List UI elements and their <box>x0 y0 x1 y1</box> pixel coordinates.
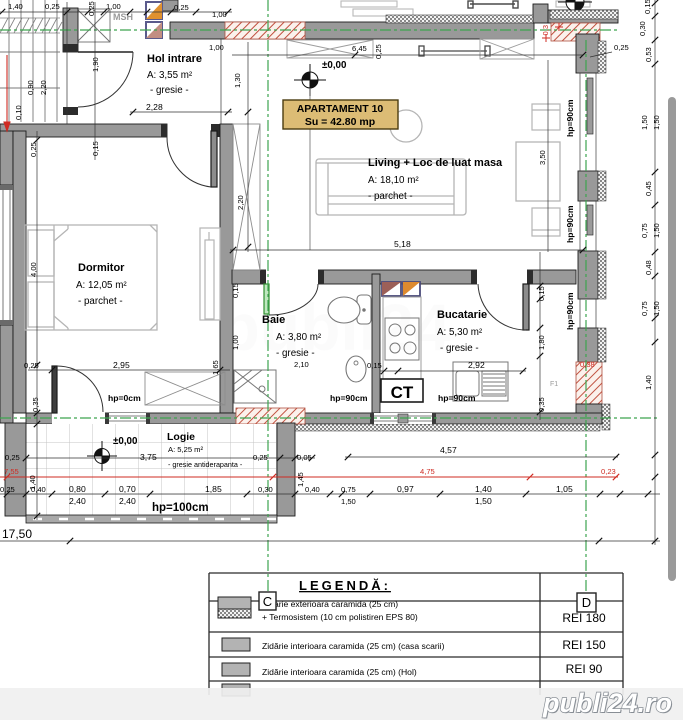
svg-text:Zidărie interioara caramida (2: Zidărie interioara caramida (25 cm) (cas… <box>262 641 445 651</box>
svg-text:MSH: MSH <box>113 12 133 22</box>
svg-text:1,85: 1,85 <box>205 484 222 494</box>
svg-text:hp=0cm: hp=0cm <box>108 393 141 403</box>
svg-text:hp=90cm: hp=90cm <box>330 393 368 403</box>
svg-text:Dormitor: Dormitor <box>78 262 125 274</box>
svg-text:Zidarie exterioara caramida (2: Zidarie exterioara caramida (25 cm) <box>262 599 398 609</box>
svg-text:D: D <box>582 595 591 610</box>
svg-text:0,35: 0,35 <box>31 397 40 412</box>
svg-text:1,80: 1,80 <box>537 335 546 350</box>
svg-text:- gresie -: - gresie - <box>276 348 315 359</box>
svg-text:0,30: 0,30 <box>638 21 647 36</box>
svg-text:REI 90: REI 90 <box>566 662 603 676</box>
svg-text:hp=90cm: hp=90cm <box>565 205 575 243</box>
svg-text:2,95: 2,95 <box>113 360 130 370</box>
svg-text:A: 5,25 m²: A: 5,25 m² <box>168 445 203 454</box>
svg-text:- gresie -: - gresie - <box>150 85 189 96</box>
svg-text:2,20: 2,20 <box>39 80 48 95</box>
svg-text:2,28: 2,28 <box>146 102 163 112</box>
svg-text:1,40: 1,40 <box>475 484 492 494</box>
svg-text:4,57: 4,57 <box>440 445 457 455</box>
svg-text:- gresie -: - gresie - <box>440 343 479 354</box>
svg-text:1,50: 1,50 <box>475 496 492 506</box>
svg-text:1,45: 1,45 <box>296 472 305 487</box>
svg-text:0,53: 0,53 <box>644 47 653 62</box>
svg-text:1,50: 1,50 <box>652 115 661 130</box>
svg-text:0,48: 0,48 <box>644 260 653 275</box>
svg-text:Bucatarie: Bucatarie <box>437 309 487 321</box>
svg-text:6,45: 6,45 <box>352 44 367 53</box>
svg-text:0,97: 0,97 <box>397 484 414 494</box>
svg-text:0,40: 0,40 <box>305 485 320 494</box>
svg-text:F1: F1 <box>550 381 558 388</box>
svg-text:0,38: 0,38 <box>580 360 595 369</box>
svg-text:±0,00: ±0,00 <box>322 60 347 71</box>
svg-text:1,30: 1,30 <box>233 73 242 88</box>
svg-text:0,75: 0,75 <box>640 301 649 316</box>
svg-text:hp=100cm: hp=100cm <box>152 502 209 514</box>
svg-text:A: 12,05 m²: A: 12,05 m² <box>76 280 127 291</box>
svg-text:0,35: 0,35 <box>537 397 546 412</box>
svg-text:- parchet -: - parchet - <box>368 191 413 202</box>
svg-text:1,50: 1,50 <box>652 223 661 238</box>
svg-text:5,18: 5,18 <box>394 239 411 249</box>
svg-text:1,05: 1,05 <box>556 484 573 494</box>
svg-text:±0,00: ±0,00 <box>113 436 138 447</box>
svg-text:A: 3,55 m²: A: 3,55 m² <box>147 70 193 81</box>
svg-text:Zidărie interioara caramida (2: Zidărie interioara caramida (25 cm) (Hol… <box>262 667 417 677</box>
svg-text:A: 18,10 m²: A: 18,10 m² <box>368 175 419 186</box>
svg-text:17,50: 17,50 <box>2 527 32 541</box>
svg-text:0,40: 0,40 <box>31 485 46 494</box>
svg-text:A: 3,80 m²: A: 3,80 m² <box>276 332 322 343</box>
svg-text:0,05: 0,05 <box>297 453 312 462</box>
svg-text:3,75: 3,75 <box>140 452 157 462</box>
svg-text:4,75: 4,75 <box>420 467 435 476</box>
svg-text:1,00: 1,00 <box>212 10 227 19</box>
svg-text:-0,3: -0,3 <box>541 25 550 38</box>
svg-text:0,10: 0,10 <box>14 105 23 120</box>
svg-text:2,92: 2,92 <box>468 360 485 370</box>
svg-text:+ Termosistem (10 cm polistire: + Termosistem (10 cm polistiren EPS 80) <box>262 612 418 622</box>
svg-text:hp=90cm: hp=90cm <box>565 99 575 137</box>
svg-text:0,25: 0,25 <box>374 44 383 59</box>
svg-text:REI 150: REI 150 <box>562 638 606 652</box>
svg-text:2,40: 2,40 <box>69 496 86 506</box>
svg-text:Su = 42.80 mp: Su = 42.80 mp <box>305 116 375 128</box>
svg-text:0,15: 0,15 <box>537 286 546 301</box>
svg-text:1,50: 1,50 <box>652 301 661 316</box>
svg-text:0,75: 0,75 <box>341 485 356 494</box>
svg-text:1,50: 1,50 <box>640 115 649 130</box>
svg-text:3,50: 3,50 <box>538 150 547 165</box>
svg-text:1,40: 1,40 <box>8 2 23 11</box>
svg-text:publi24.ro: publi24.ro <box>542 688 672 718</box>
svg-text:0,23: 0,23 <box>601 467 616 476</box>
svg-text:0,15: 0,15 <box>231 283 240 298</box>
svg-text:A: 5,30 m²: A: 5,30 m² <box>437 327 483 338</box>
svg-text:- gresie antiderapanta -: - gresie antiderapanta - <box>168 460 243 469</box>
svg-text:0,30: 0,30 <box>258 485 273 494</box>
svg-text:Living + Loc de luat masa: Living + Loc de luat masa <box>368 157 503 169</box>
svg-text:Logie: Logie <box>167 431 195 443</box>
svg-text:2,10: 2,10 <box>294 360 309 369</box>
svg-text:2,20: 2,20 <box>236 195 245 210</box>
svg-text:Baie: Baie <box>262 314 285 326</box>
svg-text:0,25: 0,25 <box>0 485 15 494</box>
svg-text:Hol intrare: Hol intrare <box>147 53 202 65</box>
svg-text:0,25: 0,25 <box>614 43 629 52</box>
svg-text:1,40: 1,40 <box>644 375 653 390</box>
svg-text:0,25: 0,25 <box>5 453 20 462</box>
svg-text:hp=90cm: hp=90cm <box>565 292 575 330</box>
svg-text:- parchet -: - parchet - <box>78 296 123 307</box>
svg-text:0,15: 0,15 <box>91 141 100 156</box>
svg-text:CT: CT <box>391 383 414 402</box>
svg-text:0,80: 0,80 <box>69 484 86 494</box>
svg-text:0,25: 0,25 <box>174 3 189 12</box>
svg-text:hp=90cm: hp=90cm <box>438 393 476 403</box>
svg-text:1,00: 1,00 <box>106 2 121 11</box>
svg-text:0,25: 0,25 <box>24 361 39 370</box>
svg-text:LEGENDĂ:: LEGENDĂ: <box>299 578 391 593</box>
svg-text:APARTAMENT 10: APARTAMENT 10 <box>297 103 384 115</box>
svg-text:0,90: 0,90 <box>26 80 35 95</box>
svg-text:1,00: 1,00 <box>231 335 240 350</box>
svg-text:1,50: 1,50 <box>341 497 356 506</box>
svg-text:0,75: 0,75 <box>640 223 649 238</box>
svg-text:7,55: 7,55 <box>4 467 19 476</box>
svg-text:1,00: 1,00 <box>209 43 224 52</box>
svg-text:1,90: 1,90 <box>91 57 100 72</box>
svg-text:C: C <box>263 594 272 609</box>
svg-text:0,45: 0,45 <box>644 181 653 196</box>
svg-text:REI 180: REI 180 <box>562 611 606 625</box>
svg-text:1,65: 1,65 <box>211 360 220 375</box>
svg-text:0,25: 0,25 <box>45 2 60 11</box>
svg-text:0,70: 0,70 <box>119 484 136 494</box>
svg-text:2,40: 2,40 <box>119 496 136 506</box>
svg-text:0,25: 0,25 <box>253 453 268 462</box>
svg-text:0,15: 0,15 <box>643 0 652 14</box>
svg-text:0,15: 0,15 <box>367 361 382 370</box>
svg-text:0,25: 0,25 <box>87 1 96 16</box>
